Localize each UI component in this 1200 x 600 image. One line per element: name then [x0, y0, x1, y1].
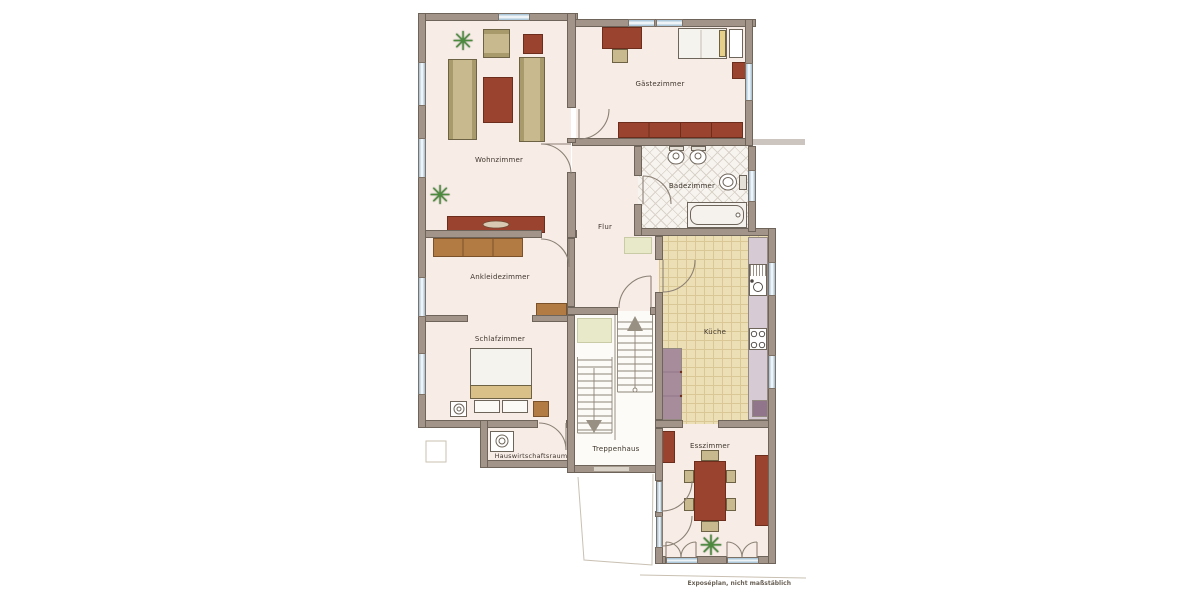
nightstand-right: [533, 401, 549, 417]
dining-table: [694, 461, 726, 521]
wall: [634, 146, 642, 176]
wall-spur: [753, 139, 805, 145]
floor-plan: ✳ ✳ ✳: [0, 0, 1200, 600]
wall: [567, 307, 618, 315]
plant-icon: ✳: [449, 28, 477, 56]
fridge: [752, 400, 768, 417]
dining-chair-top: [701, 450, 719, 461]
wardrobe: [433, 238, 523, 257]
window: [745, 63, 753, 101]
window: [656, 516, 663, 548]
wall: [655, 420, 683, 428]
bed-duvet: [470, 348, 532, 386]
room-label-wohnzimmer: Wohnzimmer: [475, 156, 523, 164]
room-label-badezimmer: Badezimmer: [669, 182, 715, 190]
window: [498, 13, 530, 21]
window: [666, 557, 698, 564]
window: [656, 19, 683, 27]
building-entrance-door: [593, 466, 630, 472]
kitchen-cabinet: [662, 348, 682, 420]
wall: [634, 204, 642, 236]
armchair: [483, 29, 510, 58]
desk-chair: [612, 49, 628, 63]
window: [727, 557, 759, 564]
wall: [567, 315, 575, 473]
room-label-hauswirtschaftsraum: Hauswirtschaftsraum: [495, 452, 568, 460]
bathtub: [687, 202, 747, 228]
window: [628, 19, 655, 27]
guest-bed-pillow: [719, 30, 726, 57]
bed-pillow-right: [502, 400, 528, 413]
desk: [602, 27, 642, 49]
wall: [567, 13, 576, 108]
room-label-kueche: Küche: [704, 328, 726, 336]
nightstand-left: [450, 401, 467, 417]
dining-chair-left2: [684, 498, 694, 511]
bedside-table: [729, 29, 743, 58]
cabinet-esszimmer: [662, 431, 675, 463]
wall: [696, 556, 727, 564]
side-table: [523, 34, 543, 54]
window: [768, 262, 776, 296]
sofa-right: [519, 57, 545, 142]
bed-blanket: [470, 385, 532, 399]
window: [418, 62, 426, 106]
room-label-treppenhaus: Treppenhaus: [593, 445, 640, 453]
wall: [567, 138, 576, 143]
dining-chair-left1: [684, 470, 694, 483]
kitchen-sink: [749, 264, 767, 296]
room-label-schlafzimmer: Schlafzimmer: [475, 335, 525, 343]
footer-note: Exposéplan, nicht maßstäblich: [687, 580, 791, 587]
dining-chair-right1: [726, 470, 736, 483]
wall: [655, 547, 663, 564]
wall: [572, 138, 753, 146]
room-label-esszimmer: Esszimmer: [690, 442, 730, 450]
wall: [567, 172, 576, 238]
wall: [418, 420, 538, 428]
wall: [567, 238, 575, 307]
wall: [655, 292, 663, 420]
washing-machine: [490, 431, 514, 452]
stove: [749, 328, 767, 350]
wall: [480, 460, 575, 468]
window: [768, 355, 776, 389]
sink-backsplash-left: [669, 146, 684, 151]
wall: [655, 236, 663, 260]
window: [748, 170, 756, 202]
coffee-table: [483, 77, 513, 123]
doormat-stairs: [577, 318, 612, 343]
bed-pillow-left: [474, 400, 500, 413]
room-label-gaestezimmer: Gästezimmer: [635, 80, 684, 88]
doormat-kitchen: [624, 237, 652, 254]
wall: [418, 230, 542, 238]
window: [418, 138, 426, 178]
sofa-left: [448, 59, 477, 140]
window: [418, 277, 426, 317]
wall: [480, 420, 488, 468]
sink-backsplash-right: [691, 146, 706, 151]
wall: [655, 428, 663, 481]
toilet-tank: [739, 175, 747, 190]
room-label-flur: Flur: [598, 223, 612, 231]
plant-icon: ✳: [426, 182, 454, 210]
window: [418, 353, 426, 395]
sideboard-gaestezimmer: [618, 122, 743, 138]
dining-chair-right2: [726, 498, 736, 511]
room-label-ankleidezimmer: Ankleidezimmer: [470, 273, 529, 281]
window: [656, 481, 663, 513]
